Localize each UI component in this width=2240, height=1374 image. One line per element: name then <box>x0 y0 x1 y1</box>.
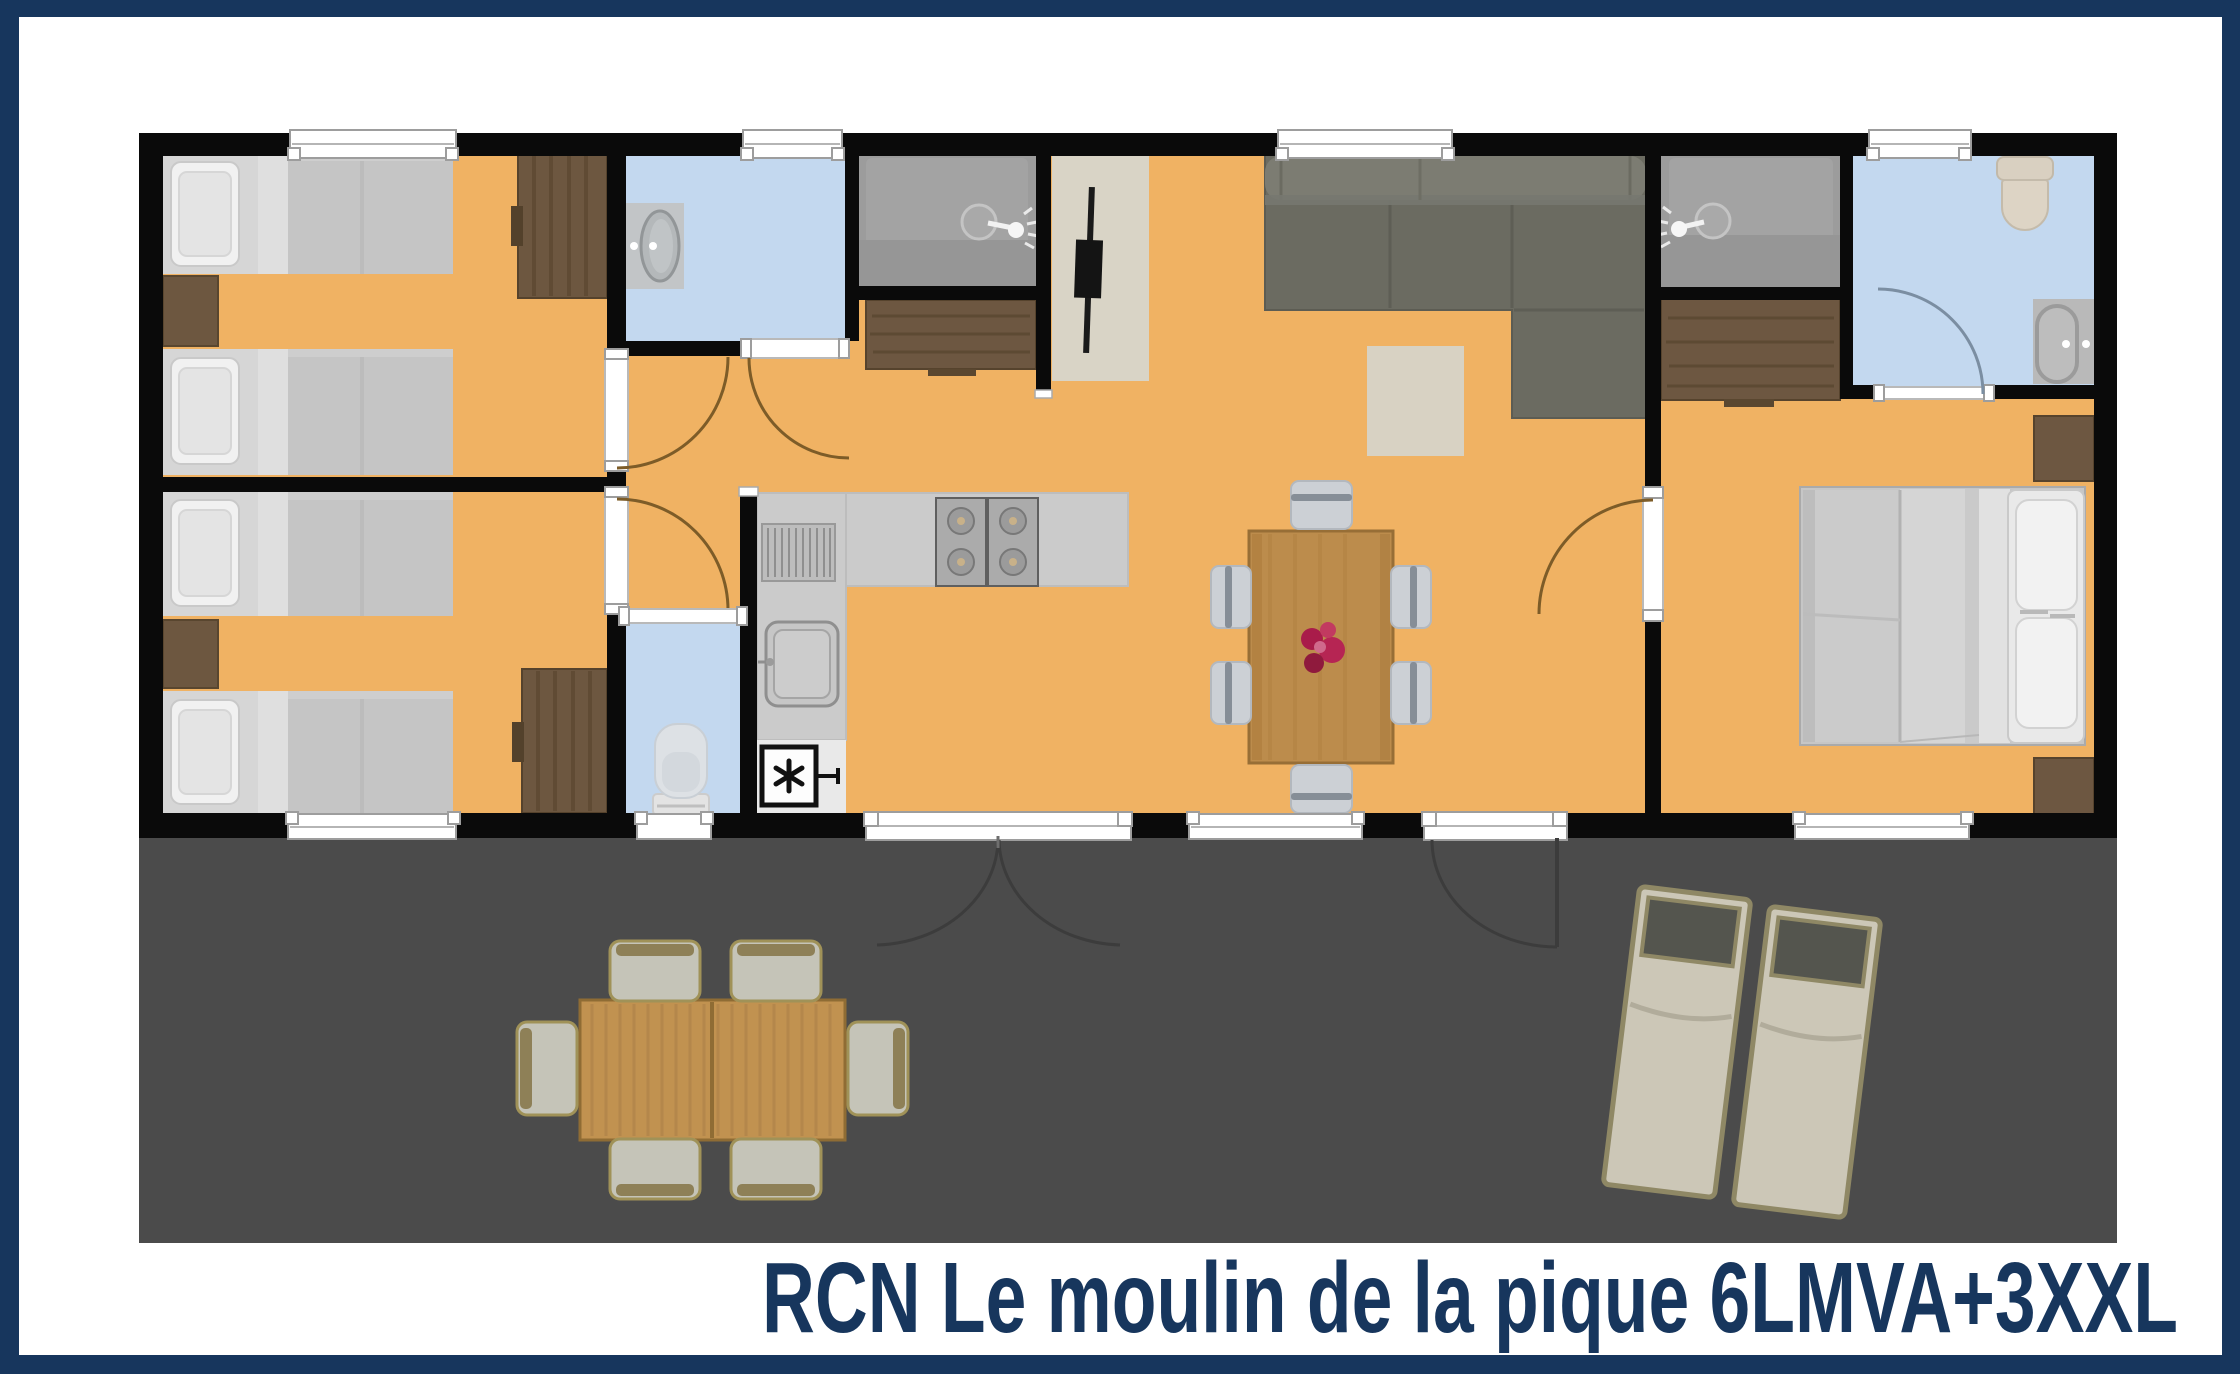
svg-text:RCN Le moulin de la pique 6LMV: RCN Le moulin de la pique 6LMVA+3XXL <box>762 1242 2178 1354</box>
